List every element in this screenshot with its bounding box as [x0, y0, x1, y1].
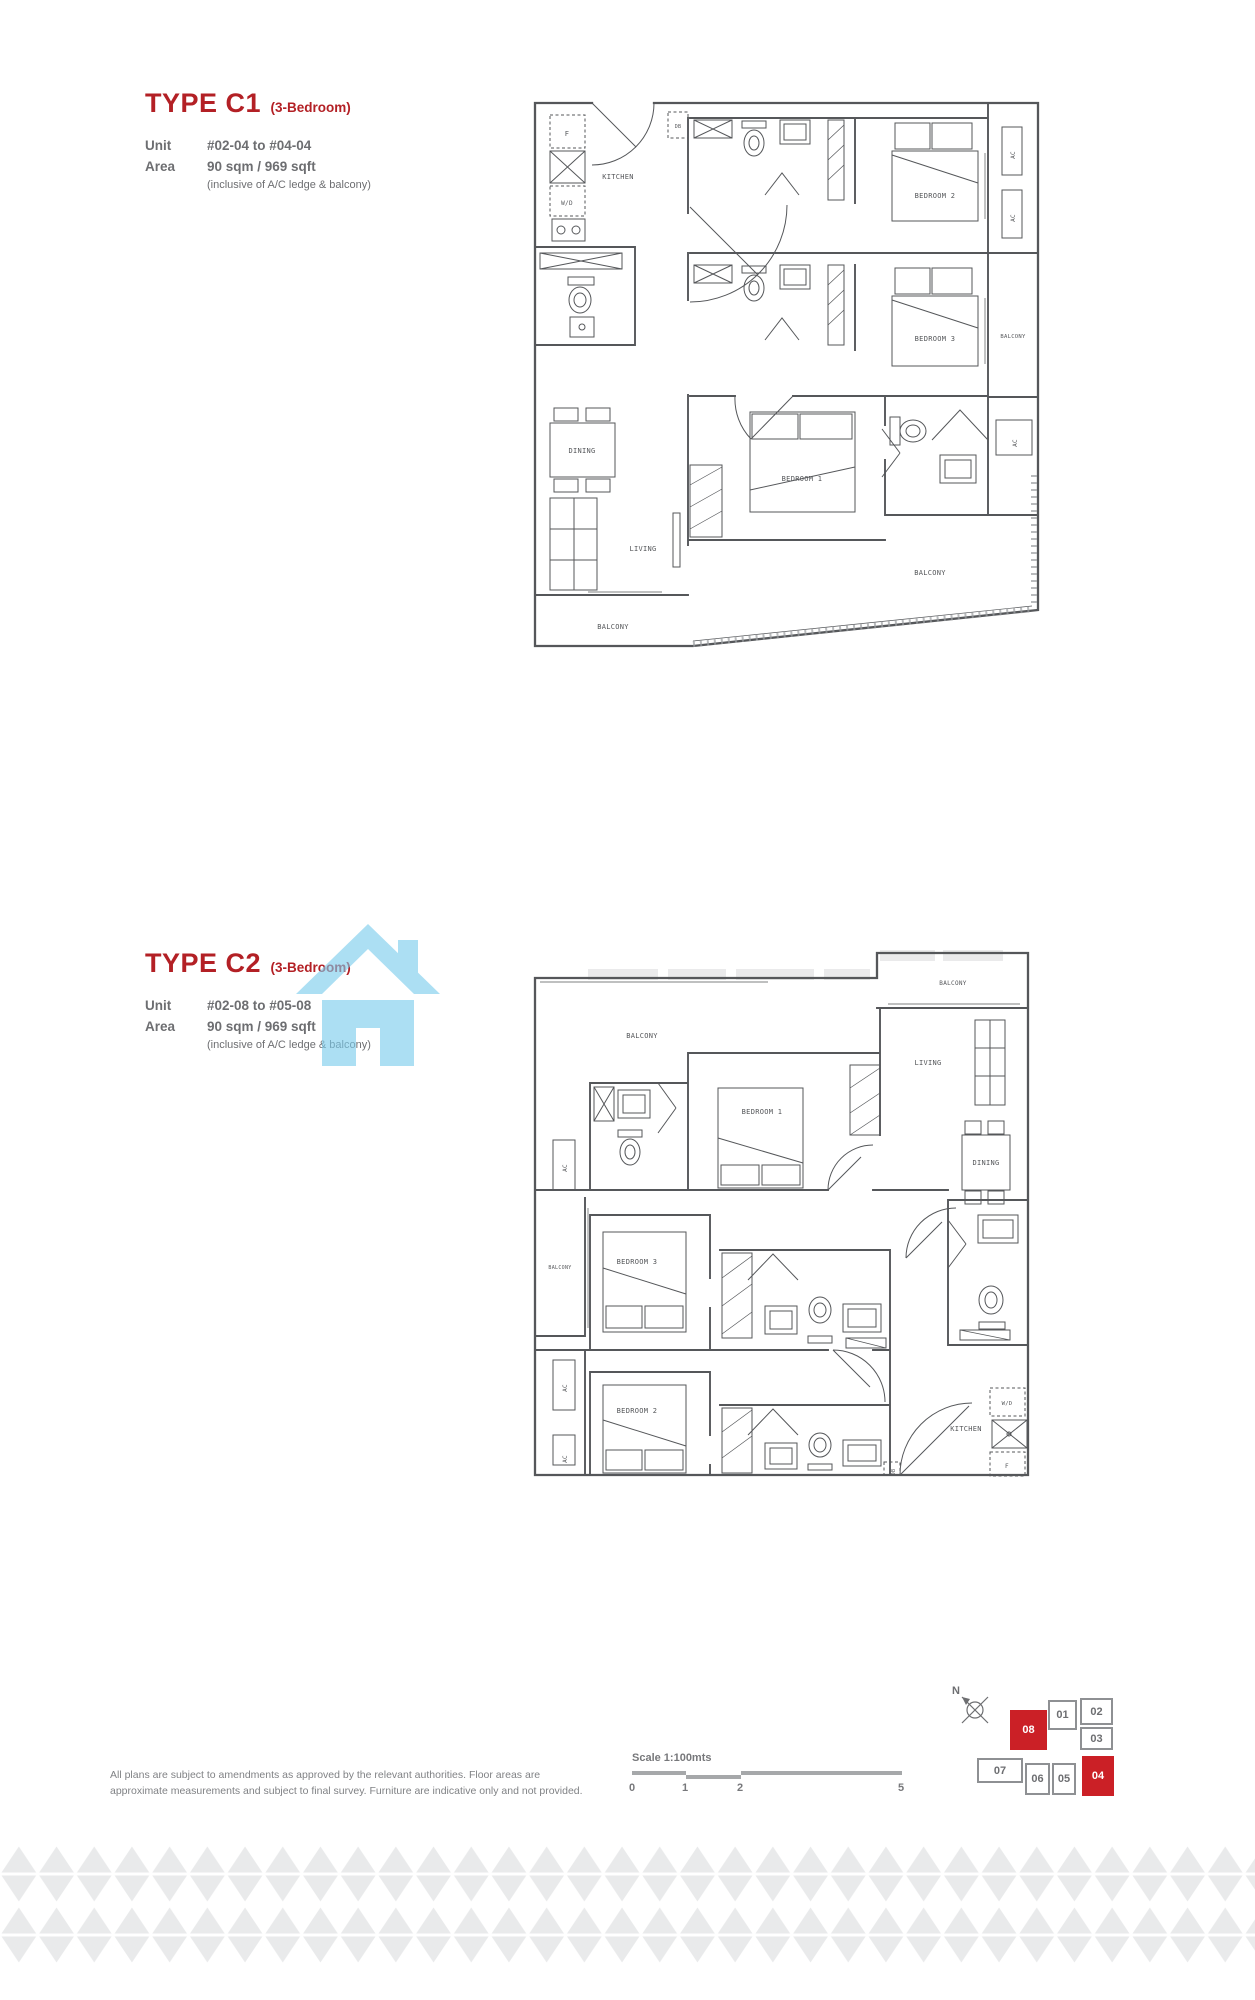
c1-bedroom2-label: BEDROOM 2 — [915, 192, 956, 200]
area-value: 90 sqm / 969 sqft — [207, 156, 316, 177]
c2-dining-label: DINING — [972, 1159, 999, 1167]
c1-ac1-label: AC — [1010, 151, 1017, 159]
c1-balcony-front-label: BALCONY — [597, 623, 629, 631]
type-c2-area-note: (inclusive of A/C ledge & balcony) — [207, 1037, 485, 1053]
type-c1-area-row: Area 90 sqm / 969 sqft — [145, 156, 485, 177]
c2-bedroom3-label: BEDROOM 3 — [617, 1258, 658, 1266]
c2-balcony-top-label: BALCONY — [939, 980, 966, 987]
keyplan-unit-08: 08 — [1010, 1710, 1047, 1750]
c1-ac2-label: AC — [1010, 214, 1017, 222]
keyplan-unit-01: 01 — [1048, 1700, 1077, 1730]
c1-ac3-label: AC — [1012, 439, 1019, 447]
type-c1-subtitle: (3-Bedroom) — [271, 100, 351, 115]
c1-living-label: LIVING — [629, 545, 656, 553]
c1-kitchen-label: KITCHEN — [602, 173, 634, 181]
c2-kitchen-label: KITCHEN — [950, 1425, 982, 1433]
c2-ac3-label: AC — [562, 1455, 569, 1463]
c2-db-label: DB — [891, 1469, 897, 1476]
c2-fixtures — [540, 982, 1027, 1476]
c2-ac1-label: AC — [562, 1164, 569, 1172]
c2-balcony-upper-label: BALCONY — [626, 1032, 658, 1040]
c1-db-label: DB — [675, 124, 682, 130]
c2-bedroom1-label: BEDROOM 1 — [742, 1108, 783, 1116]
north-compass-icon: N — [950, 1683, 994, 1729]
scale-ticks: 0 1 2 5 — [632, 1780, 912, 1794]
unit-value: #02-08 to #05-08 — [207, 995, 311, 1016]
north-label: N — [952, 1685, 960, 1697]
scale-tick-2: 2 — [737, 1782, 743, 1794]
disclaimer-text: All plans are subject to amendments as a… — [110, 1768, 590, 1800]
type-c1-title-row: TYPE C1 (3-Bedroom) — [145, 88, 485, 119]
c2-wd-label: W/D — [1002, 1401, 1013, 1407]
type-c2-area-row: Area 90 sqm / 969 sqft — [145, 1016, 485, 1037]
type-c2-header: TYPE C2 (3-Bedroom) Unit #02-08 to #05-0… — [145, 948, 485, 1053]
keyplan-unit-02: 02 — [1080, 1698, 1113, 1725]
type-c2-subtitle: (3-Bedroom) — [271, 960, 351, 975]
scale-bar: Scale 1:100mts 0 1 2 5 — [632, 1752, 912, 1802]
c2-ac2-label: AC — [562, 1384, 569, 1392]
scale-bar-graphic — [632, 1771, 912, 1780]
key-plan: N 08 01 02 03 07 06 05 04 — [945, 1653, 1135, 1813]
c2-labels: BALCONY BALCONY LIVING BEDROOM 1 DINING … — [548, 980, 1012, 1475]
unit-value: #02-04 to #04-04 — [207, 135, 311, 156]
area-label: Area — [145, 1016, 207, 1037]
keyplan-unit-06: 06 — [1025, 1763, 1050, 1795]
floor-plan-c1: F W/D KITCHEN DB BEDROOM 2 BEDROOM 3 BED… — [530, 95, 1045, 660]
c2-outer-walls — [535, 953, 1028, 1475]
c2-balcony-left-label: BALCONY — [548, 1265, 571, 1271]
unit-label: Unit — [145, 995, 207, 1016]
c1-bedroom3-label: BEDROOM 3 — [915, 335, 956, 343]
type-c1-title: TYPE C1 — [145, 88, 261, 118]
decorative-triangle-pattern — [0, 1846, 1255, 1970]
c2-fridge-label: F — [1005, 1463, 1009, 1470]
c2-watermark-marks — [588, 950, 1003, 980]
keyplan-unit-07: 07 — [977, 1758, 1023, 1783]
scale-tick-5: 5 — [898, 1782, 904, 1794]
type-c1-area-note: (inclusive of A/C ledge & balcony) — [207, 177, 485, 193]
c1-balcony-main-label: BALCONY — [914, 569, 946, 577]
type-c2-title-row: TYPE C2 (3-Bedroom) — [145, 948, 485, 979]
keyplan-unit-03: 03 — [1080, 1727, 1113, 1750]
c1-balcony-right-label: BALCONY — [1000, 334, 1026, 340]
area-label: Area — [145, 156, 207, 177]
c1-outer-walls — [535, 103, 1038, 646]
type-c1-header: TYPE C1 (3-Bedroom) Unit #02-04 to #04-0… — [145, 88, 485, 193]
scale-label: Scale 1:100mts — [632, 1752, 912, 1764]
scale-tick-0: 0 — [629, 1782, 635, 1794]
c2-living-label: LIVING — [914, 1059, 941, 1067]
keyplan-unit-05: 05 — [1052, 1763, 1076, 1795]
floorplan-sheet: TYPE C1 (3-Bedroom) Unit #02-04 to #04-0… — [0, 0, 1255, 2000]
c1-bedroom1-label: BEDROOM 1 — [782, 475, 823, 483]
floor-plan-c2: BALCONY BALCONY LIVING BEDROOM 1 DINING … — [528, 938, 1038, 1483]
type-c2-unit-row: Unit #02-08 to #05-08 — [145, 995, 485, 1016]
scale-tick-1: 1 — [682, 1782, 688, 1794]
c1-labels: F W/D KITCHEN DB BEDROOM 2 BEDROOM 3 BED… — [561, 124, 1026, 631]
c1-dining-label: DINING — [568, 447, 595, 455]
unit-label: Unit — [145, 135, 207, 156]
area-value: 90 sqm / 969 sqft — [207, 1016, 316, 1037]
c1-wd-label: W/D — [561, 200, 573, 207]
c2-bedroom2-label: BEDROOM 2 — [617, 1407, 658, 1415]
type-c2-title: TYPE C2 — [145, 948, 261, 978]
c1-fridge-label: F — [565, 130, 570, 138]
keyplan-unit-04: 04 — [1082, 1756, 1114, 1796]
type-c1-unit-row: Unit #02-04 to #04-04 — [145, 135, 485, 156]
c1-fixtures — [540, 103, 1034, 644]
